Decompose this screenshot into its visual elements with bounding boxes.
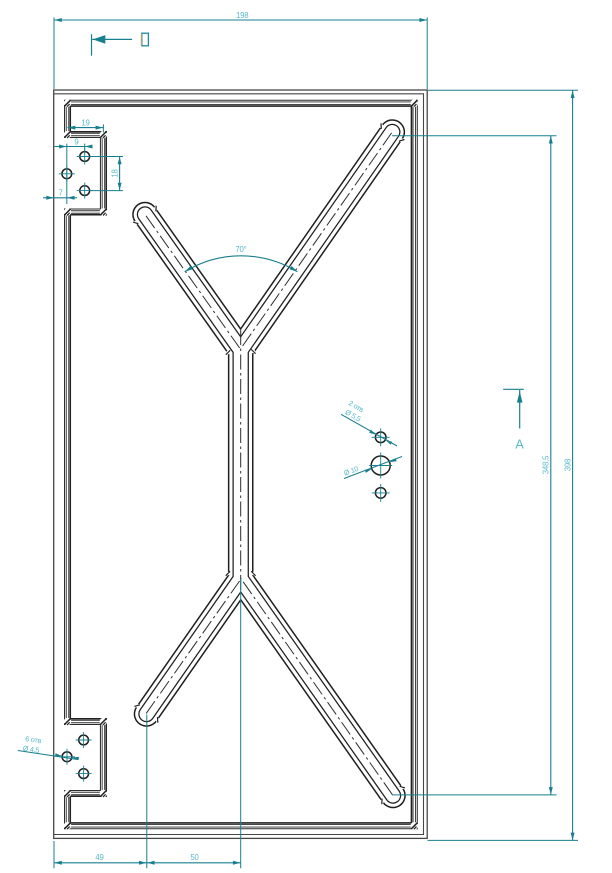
svg-text:7: 7 [59, 188, 63, 197]
svg-text:198: 198 [236, 11, 248, 20]
svg-text:348,5: 348,5 [542, 455, 551, 474]
svg-text:A: A [515, 438, 524, 452]
svg-text:49: 49 [95, 853, 103, 862]
svg-text:398: 398 [564, 459, 573, 471]
svg-text:9: 9 [74, 137, 78, 146]
svg-text:50: 50 [190, 853, 199, 862]
svg-text:70°: 70° [235, 245, 246, 254]
svg-text:19: 19 [81, 119, 89, 128]
svg-text:18: 18 [110, 169, 119, 177]
